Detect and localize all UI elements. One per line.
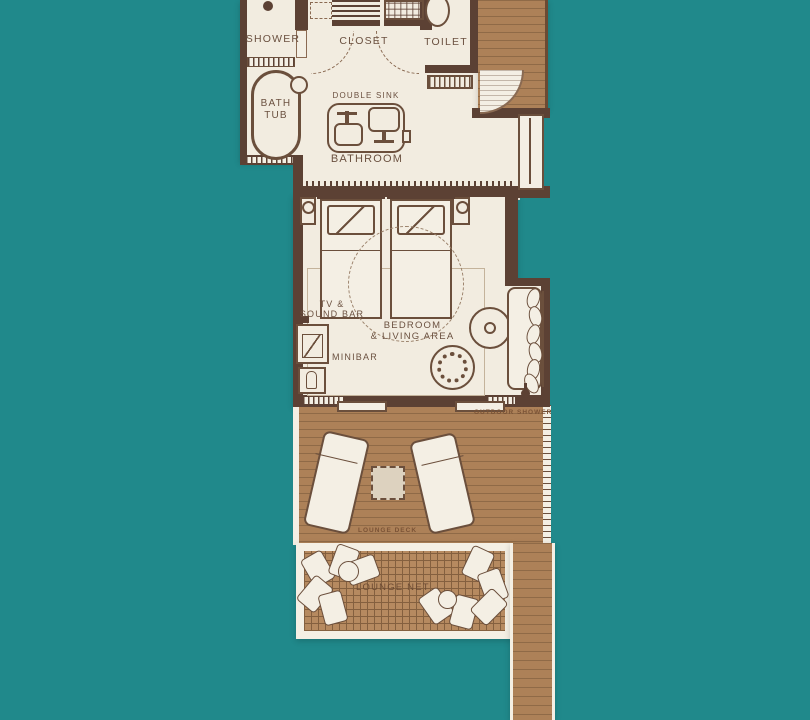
faucet-left-bar	[337, 112, 357, 115]
deck-pouf-table	[371, 466, 405, 500]
wall-toilet-bottom	[425, 65, 478, 73]
closet-shelf-base	[384, 20, 424, 26]
label-outdoor-shower: OUTDOOR SHOWER	[474, 409, 552, 416]
label-bathtub-line1: BATH	[261, 98, 292, 109]
closet-rail	[332, 0, 380, 20]
minibar-bottle	[306, 371, 317, 389]
label-bathtub-line2: TUB	[264, 110, 288, 121]
closet-rail-base	[332, 20, 380, 26]
vanity-outlet	[402, 130, 411, 143]
deck-ladder	[543, 405, 551, 545]
net-round-pillow	[438, 590, 457, 609]
label-toilet: TOILET	[422, 36, 470, 48]
wall-shower-closet	[295, 0, 308, 30]
label-tv-soundbar: TV & SOUND BAR	[299, 299, 365, 320]
daybed-backrest	[542, 291, 544, 387]
entry-bench	[427, 75, 473, 89]
wall-toilet-right	[470, 0, 478, 73]
label-closet: CLOSET	[328, 35, 400, 47]
closet-safe	[310, 2, 332, 19]
entry-window	[518, 114, 544, 190]
label-bathtub: BATH TUB	[253, 98, 299, 121]
shower-screen	[247, 57, 295, 67]
label-lounge-deck: LOUNGE DECK	[358, 527, 417, 534]
label-bedroom-living: BEDROOM & LIVING AREA	[370, 321, 455, 343]
sink-left	[334, 123, 363, 146]
label-minibar: MINIBAR	[332, 352, 378, 362]
bed1-pillow	[327, 205, 375, 235]
label-shower: SHOWER	[244, 33, 302, 45]
lamp-right	[456, 201, 469, 214]
label-bedroom-line1: BEDROOM	[384, 320, 442, 331]
swivel-chair-spiral	[437, 352, 468, 383]
entry-window-pane	[529, 118, 531, 184]
faucet-right-bar	[374, 140, 394, 143]
label-bedroom-line2: & LIVING AREA	[371, 331, 455, 342]
tv-screen	[302, 334, 323, 358]
sink-right	[368, 107, 400, 132]
outdoor-shower-pipe	[524, 383, 527, 390]
label-bathroom: BATHROOM	[322, 153, 412, 166]
sliding-door-step-left	[337, 401, 387, 412]
wall-bedroom-right-upper	[505, 186, 518, 286]
closet-shelf-unit	[384, 0, 424, 20]
shower-head-icon	[263, 1, 273, 11]
outdoor-shower-head-icon	[521, 389, 530, 398]
lounge-deck-left-edge	[293, 405, 299, 545]
label-double-sink: DOUBLE SINK	[325, 91, 407, 100]
villa-floor-plan: SHOWER CLOSET TOILET BATH TUB DOUBLE SIN…	[0, 0, 810, 720]
round-side-table-inner	[484, 322, 496, 334]
lamp-left	[302, 201, 315, 214]
label-tv-line2: SOUND BAR	[300, 309, 364, 319]
net-round-pillow	[338, 561, 359, 582]
walkway-jetty	[510, 543, 555, 720]
wall-left-top	[240, 0, 247, 162]
label-lounge-net: LOUNGE NET	[356, 583, 430, 594]
label-tv-line1: TV &	[320, 299, 345, 309]
bath-stool	[290, 76, 308, 94]
